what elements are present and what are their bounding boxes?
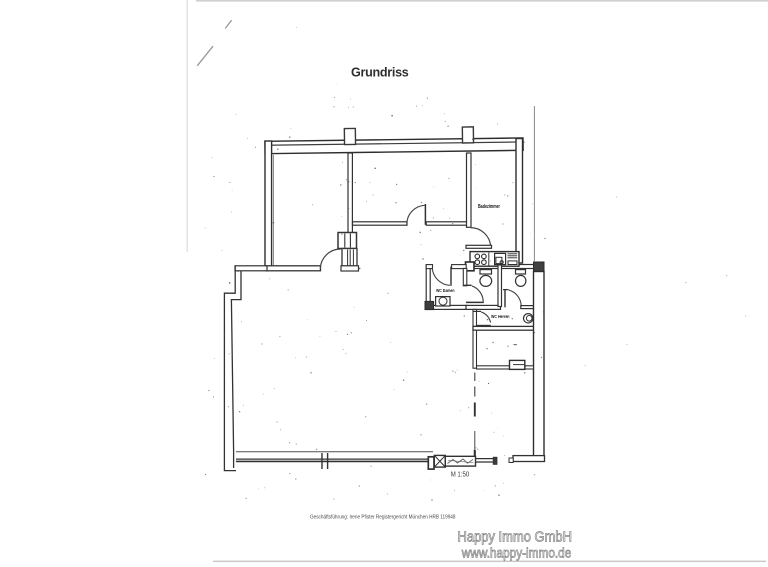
svg-text:www.happy-immo.de: www.happy-immo.de [461,546,571,561]
svg-text:Badezimmer: Badezimmer [478,204,500,210]
svg-text:Grundriss: Grundriss [351,65,409,80]
svg-text:M 1:50: M 1:50 [451,469,470,478]
svg-text:WC Herren: WC Herren [491,314,510,319]
svg-text:Happy Immo GmbH: Happy Immo GmbH [458,529,573,545]
svg-text:Geschäftsführung: Irene Pfiste: Geschäftsführung: Irene Pfister Register… [310,515,456,521]
svg-text:WC Damen: WC Damen [436,288,455,293]
